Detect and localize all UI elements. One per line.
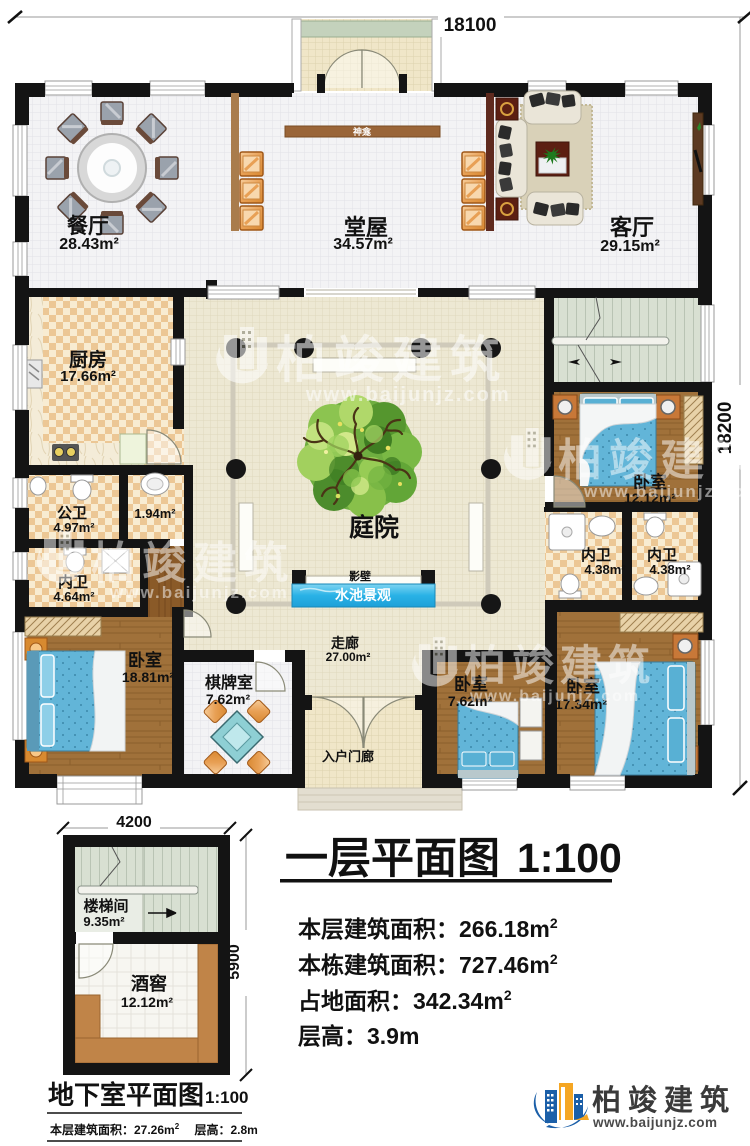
svg-text:庭院: 庭院: [349, 513, 399, 542]
svg-text:4.38m²: 4.38m²: [649, 562, 691, 577]
svg-text:28.43m²: 28.43m²: [59, 236, 119, 253]
svg-text:层高：3.9m: 层高：3.9m: [298, 1023, 419, 1049]
svg-text:本层建筑面积：27.26m2 层高：2.8m: 本层建筑面积：27.26m2 层高：2.8m: [50, 1122, 258, 1137]
svg-text:地下室平面图: 地下室平面图: [48, 1080, 204, 1110]
svg-text:棋牌室: 棋牌室: [205, 673, 253, 692]
svg-text:4.38m²: 4.38m²: [584, 562, 626, 577]
svg-text:34.57m²: 34.57m²: [333, 236, 393, 253]
svg-text:1.94m²: 1.94m²: [134, 506, 176, 521]
svg-text:楼梯间: 楼梯间: [83, 897, 128, 915]
svg-text:影壁: 影壁: [349, 569, 371, 583]
svg-text:神龛: 神龛: [353, 126, 372, 137]
svg-text:18100: 18100: [444, 15, 497, 36]
svg-text:客厅: 客厅: [610, 215, 654, 240]
svg-text:1:100: 1:100: [517, 835, 622, 881]
svg-text:4.64m²: 4.64m²: [53, 589, 95, 604]
svg-text:柏竣建筑: 柏竣建筑: [276, 332, 508, 388]
svg-text:餐厅: 餐厅: [67, 214, 109, 238]
svg-text:本栋建筑面积：727.46m2: 本栋建筑面积：727.46m2: [298, 951, 558, 978]
svg-text:4200: 4200: [116, 814, 152, 831]
svg-text:9.35m²: 9.35m²: [83, 914, 125, 929]
svg-text:占地面积：342.34m2: 占地面积：342.34m2: [298, 987, 512, 1014]
svg-text:27.00m²: 27.00m²: [326, 650, 371, 664]
svg-text:本层建筑面积：266.18m2: 本层建筑面积：266.18m2: [298, 915, 558, 942]
svg-text:柏竣建筑: 柏竣建筑: [558, 436, 750, 485]
svg-text:29.15m²: 29.15m²: [600, 238, 660, 255]
svg-text:柏竣建筑: 柏竣建筑: [91, 539, 295, 588]
svg-text:水池景观: 水池景观: [335, 587, 391, 603]
svg-text:柏竣建筑: 柏竣建筑: [464, 642, 656, 689]
svg-text:www.baijunjz.com: www.baijunjz.com: [305, 384, 511, 406]
svg-text:17.66m²: 17.66m²: [60, 368, 116, 385]
svg-text:7.62m²: 7.62m²: [206, 691, 251, 707]
svg-text:1:100: 1:100: [205, 1088, 248, 1107]
svg-text:www.baijunjz.com: www.baijunjz.com: [583, 482, 750, 501]
svg-text:www.baijunjz.com: www.baijunjz.com: [109, 583, 289, 602]
svg-text:入户门廊: 入户门廊: [322, 749, 374, 764]
svg-text:酒窖: 酒窖: [131, 973, 167, 994]
svg-text:柏竣建筑: 柏竣建筑: [592, 1083, 736, 1117]
svg-text:一层平面图: 一层平面图: [285, 835, 500, 883]
svg-text:走廊: 走廊: [331, 635, 359, 651]
svg-text:卧室: 卧室: [128, 650, 162, 670]
svg-text:18.81m²: 18.81m²: [122, 669, 174, 685]
svg-text:www.baijunjz.com: www.baijunjz.com: [469, 688, 640, 705]
svg-text:12.12m²: 12.12m²: [121, 994, 173, 1010]
svg-text:www.baijunjz.com: www.baijunjz.com: [592, 1115, 718, 1130]
